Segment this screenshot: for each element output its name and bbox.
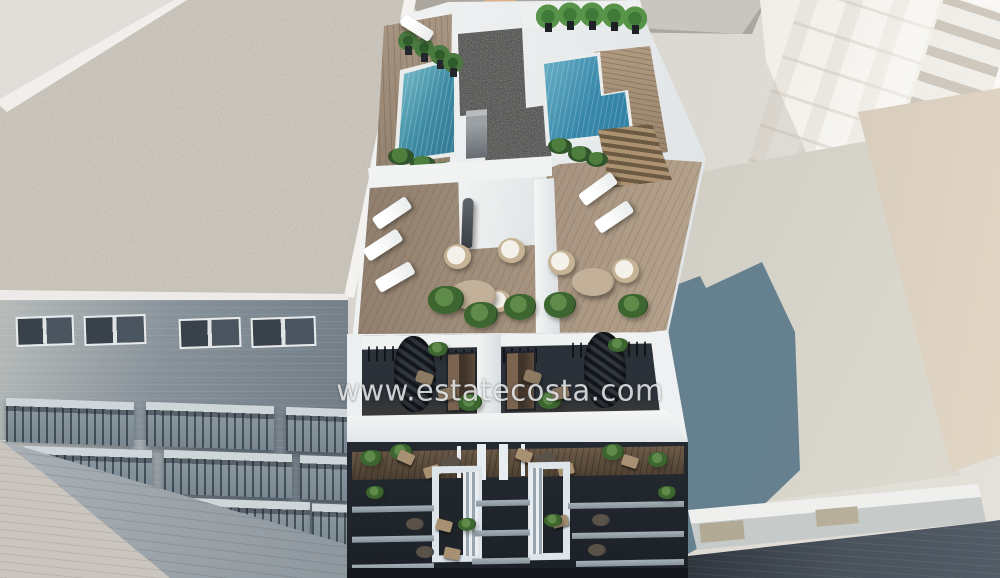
floor-slab-edge	[472, 557, 530, 564]
balcony	[286, 407, 348, 453]
rattan-chair	[548, 250, 575, 275]
balcony-table	[416, 546, 434, 558]
closed-parasol	[461, 198, 474, 248]
ground-top-right	[638, 0, 768, 46]
render-scene: www.estatecosta.com	[0, 0, 1000, 578]
shrub	[586, 152, 608, 167]
balcony	[164, 450, 292, 498]
watermark-text: www.estatecosta.com	[336, 373, 664, 407]
facade-window	[178, 317, 241, 349]
roof-vent-chimney	[466, 109, 487, 159]
planter-plant	[621, 6, 649, 34]
rattan-chair	[498, 238, 525, 263]
balcony	[146, 402, 274, 450]
balcony	[300, 455, 348, 501]
street-below-facade	[347, 568, 688, 578]
louver-panel	[530, 468, 543, 554]
rattan-chair	[612, 258, 639, 283]
facade-window	[250, 316, 316, 348]
floor-slab-edge	[474, 530, 530, 537]
floor-slab-edge	[476, 500, 530, 507]
round-table	[572, 268, 614, 296]
balcony-table	[592, 514, 610, 526]
balcony	[6, 398, 134, 446]
window-mullion	[499, 444, 508, 480]
stone-cladding-patch	[699, 520, 744, 543]
balcony-table	[406, 518, 424, 530]
facade-window	[15, 315, 74, 347]
balcony-table	[588, 544, 606, 556]
potted-palm	[441, 52, 465, 76]
stone-cladding-patch	[815, 506, 858, 527]
louver-panel	[463, 472, 478, 556]
rattan-chair	[444, 244, 471, 269]
facade-window	[83, 314, 146, 346]
